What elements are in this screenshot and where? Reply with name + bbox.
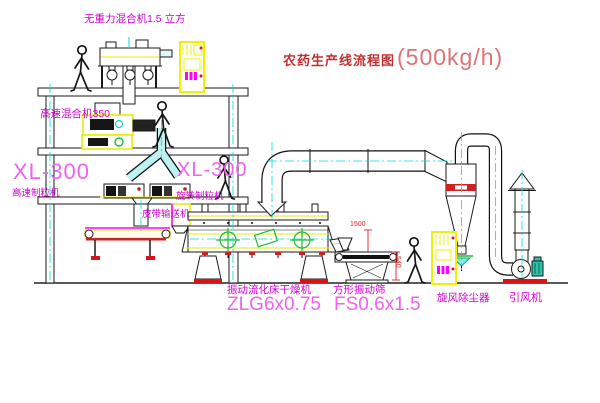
fan-motor — [532, 261, 543, 276]
label-xl300-left-sub: 高速制粒机 — [12, 189, 60, 199]
belt-conveyor — [85, 228, 170, 260]
label-xl300-center: XL-300 — [177, 160, 248, 180]
worker-figure-ground — [405, 238, 425, 283]
dryer-foot — [195, 256, 221, 279]
dryer-foot — [301, 256, 327, 279]
flow-diagram: 农药生产线流程图 (500kg/h) 无重力混合机1.5 立方 高速混合机350… — [0, 0, 600, 403]
vibrating-sieve — [330, 238, 397, 283]
dimension-540: 540 — [394, 256, 401, 268]
title-capacity: (500kg/h) — [397, 46, 503, 69]
label-gravity-mixer: 无重力混合机1.5 立方 — [84, 14, 186, 25]
label-xl300-center-sub: 旋转制粒机 — [176, 192, 224, 202]
frame-bolts — [203, 222, 321, 224]
mixer-outlet-fitting — [133, 120, 155, 131]
cabinet-knobs — [185, 72, 197, 80]
dimension-1500: 1500 — [350, 221, 366, 228]
label-dryer-model: ZLG6x0.75 — [227, 295, 321, 314]
label-high-speed-mixer: 高速混合机350 — [40, 109, 110, 120]
control-cabinet-2 — [432, 232, 456, 284]
fan-base — [503, 279, 547, 283]
cabinet-knobs — [437, 266, 449, 274]
label-belt-conveyor: 皮带输送机 — [142, 210, 190, 220]
fluid-bed-dryer — [182, 202, 336, 283]
label-fan: 引风机 — [509, 293, 542, 304]
granulator-left — [104, 184, 144, 198]
mixer-valves — [107, 66, 153, 85]
label-sieve-model: FS0.6x1.5 — [334, 295, 421, 314]
duct-reducer — [425, 151, 447, 183]
title-text: 农药生产线流程图 — [283, 54, 395, 67]
control-cabinet-1 — [180, 42, 204, 92]
exhaust-duct — [272, 149, 447, 203]
label-xl300-left: XL-300 — [13, 161, 90, 183]
worker-figure-roof — [71, 46, 91, 91]
label-cyclone: 旋风除尘器 — [437, 293, 490, 304]
diagram-title: 农药生产线流程图 (500kg/h) — [283, 46, 503, 69]
